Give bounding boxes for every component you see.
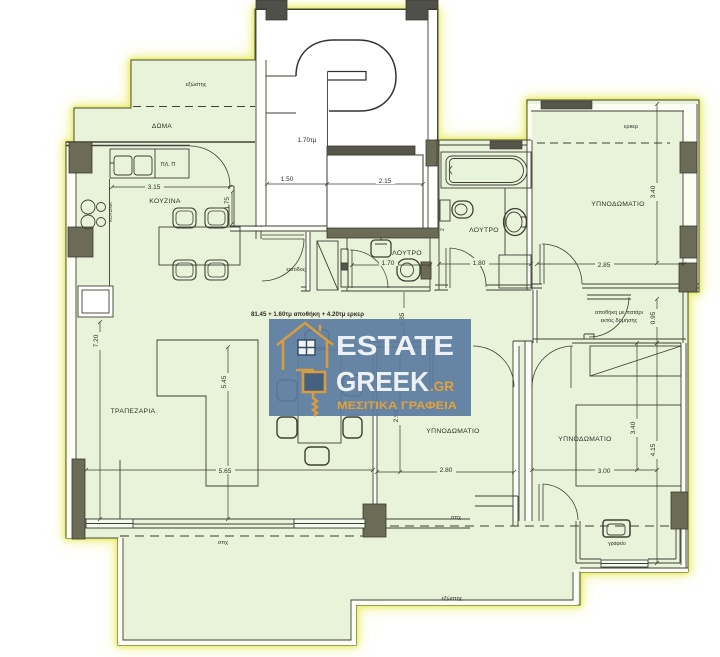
svg-text:σπχ: σπχ (218, 540, 228, 546)
svg-text:ΛΟΥΤΡΟ: ΛΟΥΤΡΟ (469, 227, 499, 234)
svg-text:ΔΩΜΑ: ΔΩΜΑ (152, 123, 173, 130)
svg-text:0.95: 0.95 (650, 311, 657, 324)
svg-text:1.80: 1.80 (473, 260, 486, 267)
svg-text:ΥΠΝΟΔΩΜΑΤΙΟ: ΥΠΝΟΔΩΜΑΤΙΟ (426, 428, 479, 435)
svg-text:5.65: 5.65 (219, 468, 232, 475)
svg-text:αποθήκη με πατάρι: αποθήκη με πατάρι (595, 309, 644, 316)
svg-text:ΥΠΝΟΔΩΜΑΤΙΟ: ΥΠΝΟΔΩΜΑΤΙΟ (558, 436, 611, 443)
svg-text:ΠΛ. Π: ΠΛ. Π (161, 162, 176, 168)
svg-text:7.20: 7.20 (93, 334, 100, 347)
svg-text:εξώστης: εξώστης (442, 596, 463, 602)
svg-text:3.40: 3.40 (630, 421, 637, 434)
svg-text:1.50: 1.50 (281, 176, 294, 183)
svg-text:2.85: 2.85 (598, 262, 611, 269)
svg-text:5.45: 5.45 (221, 375, 228, 388)
svg-text:1.70: 1.70 (382, 260, 395, 267)
svg-text:1.75: 1.75 (224, 197, 231, 210)
svg-text:4.15: 4.15 (650, 443, 657, 456)
svg-text:σπχ: σπχ (451, 515, 461, 521)
svg-text:GREEK: GREEK (336, 366, 429, 397)
svg-text:3.40: 3.40 (650, 185, 657, 198)
svg-text:3.15: 3.15 (148, 184, 161, 191)
svg-text:ΚΟΥΖΙΝΑ: ΚΟΥΖΙΝΑ (108, 202, 113, 221)
svg-text:2.80: 2.80 (440, 467, 453, 474)
svg-text:ΤΡΑΠΕΖΑΡΙΑ: ΤΡΑΠΕΖΑΡΙΑ (111, 408, 156, 415)
svg-text:ερκερ: ερκερ (624, 124, 638, 130)
svg-text:εκτός δομήσης: εκτός δομήσης (601, 317, 638, 324)
svg-text:εισοδος: εισοδος (286, 267, 306, 273)
svg-text:ΜΕΣΙΤΙΚΑ ΓΡΑΦΕΙΑ: ΜΕΣΙΤΙΚΑ ΓΡΑΦΕΙΑ (337, 400, 457, 412)
svg-text:2: 2 (440, 228, 446, 231)
svg-text:81.45 + 1.60τμ αποθήκη + 4.20τ: 81.45 + 1.60τμ αποθήκη + 4.20τμ ερκερ (251, 311, 364, 318)
svg-text:2.15: 2.15 (379, 178, 392, 185)
svg-text:ΚΟΥΖΙΝΑ: ΚΟΥΖΙΝΑ (149, 198, 181, 205)
svg-text:.GR: .GR (430, 379, 454, 394)
svg-text:3.00: 3.00 (598, 468, 611, 475)
svg-text:εξώστης: εξώστης (186, 82, 207, 88)
svg-text:ΥΠΝΟΔΩΜΑΤΙΟ: ΥΠΝΟΔΩΜΑΤΙΟ (591, 201, 644, 208)
svg-text:γραφείο: γραφείο (608, 541, 626, 547)
svg-text:ΛΟΥΤΡΟ: ΛΟΥΤΡΟ (392, 250, 422, 257)
svg-text:ESTATE: ESTATE (336, 330, 454, 361)
svg-text:1.70τμ: 1.70τμ (298, 137, 317, 144)
